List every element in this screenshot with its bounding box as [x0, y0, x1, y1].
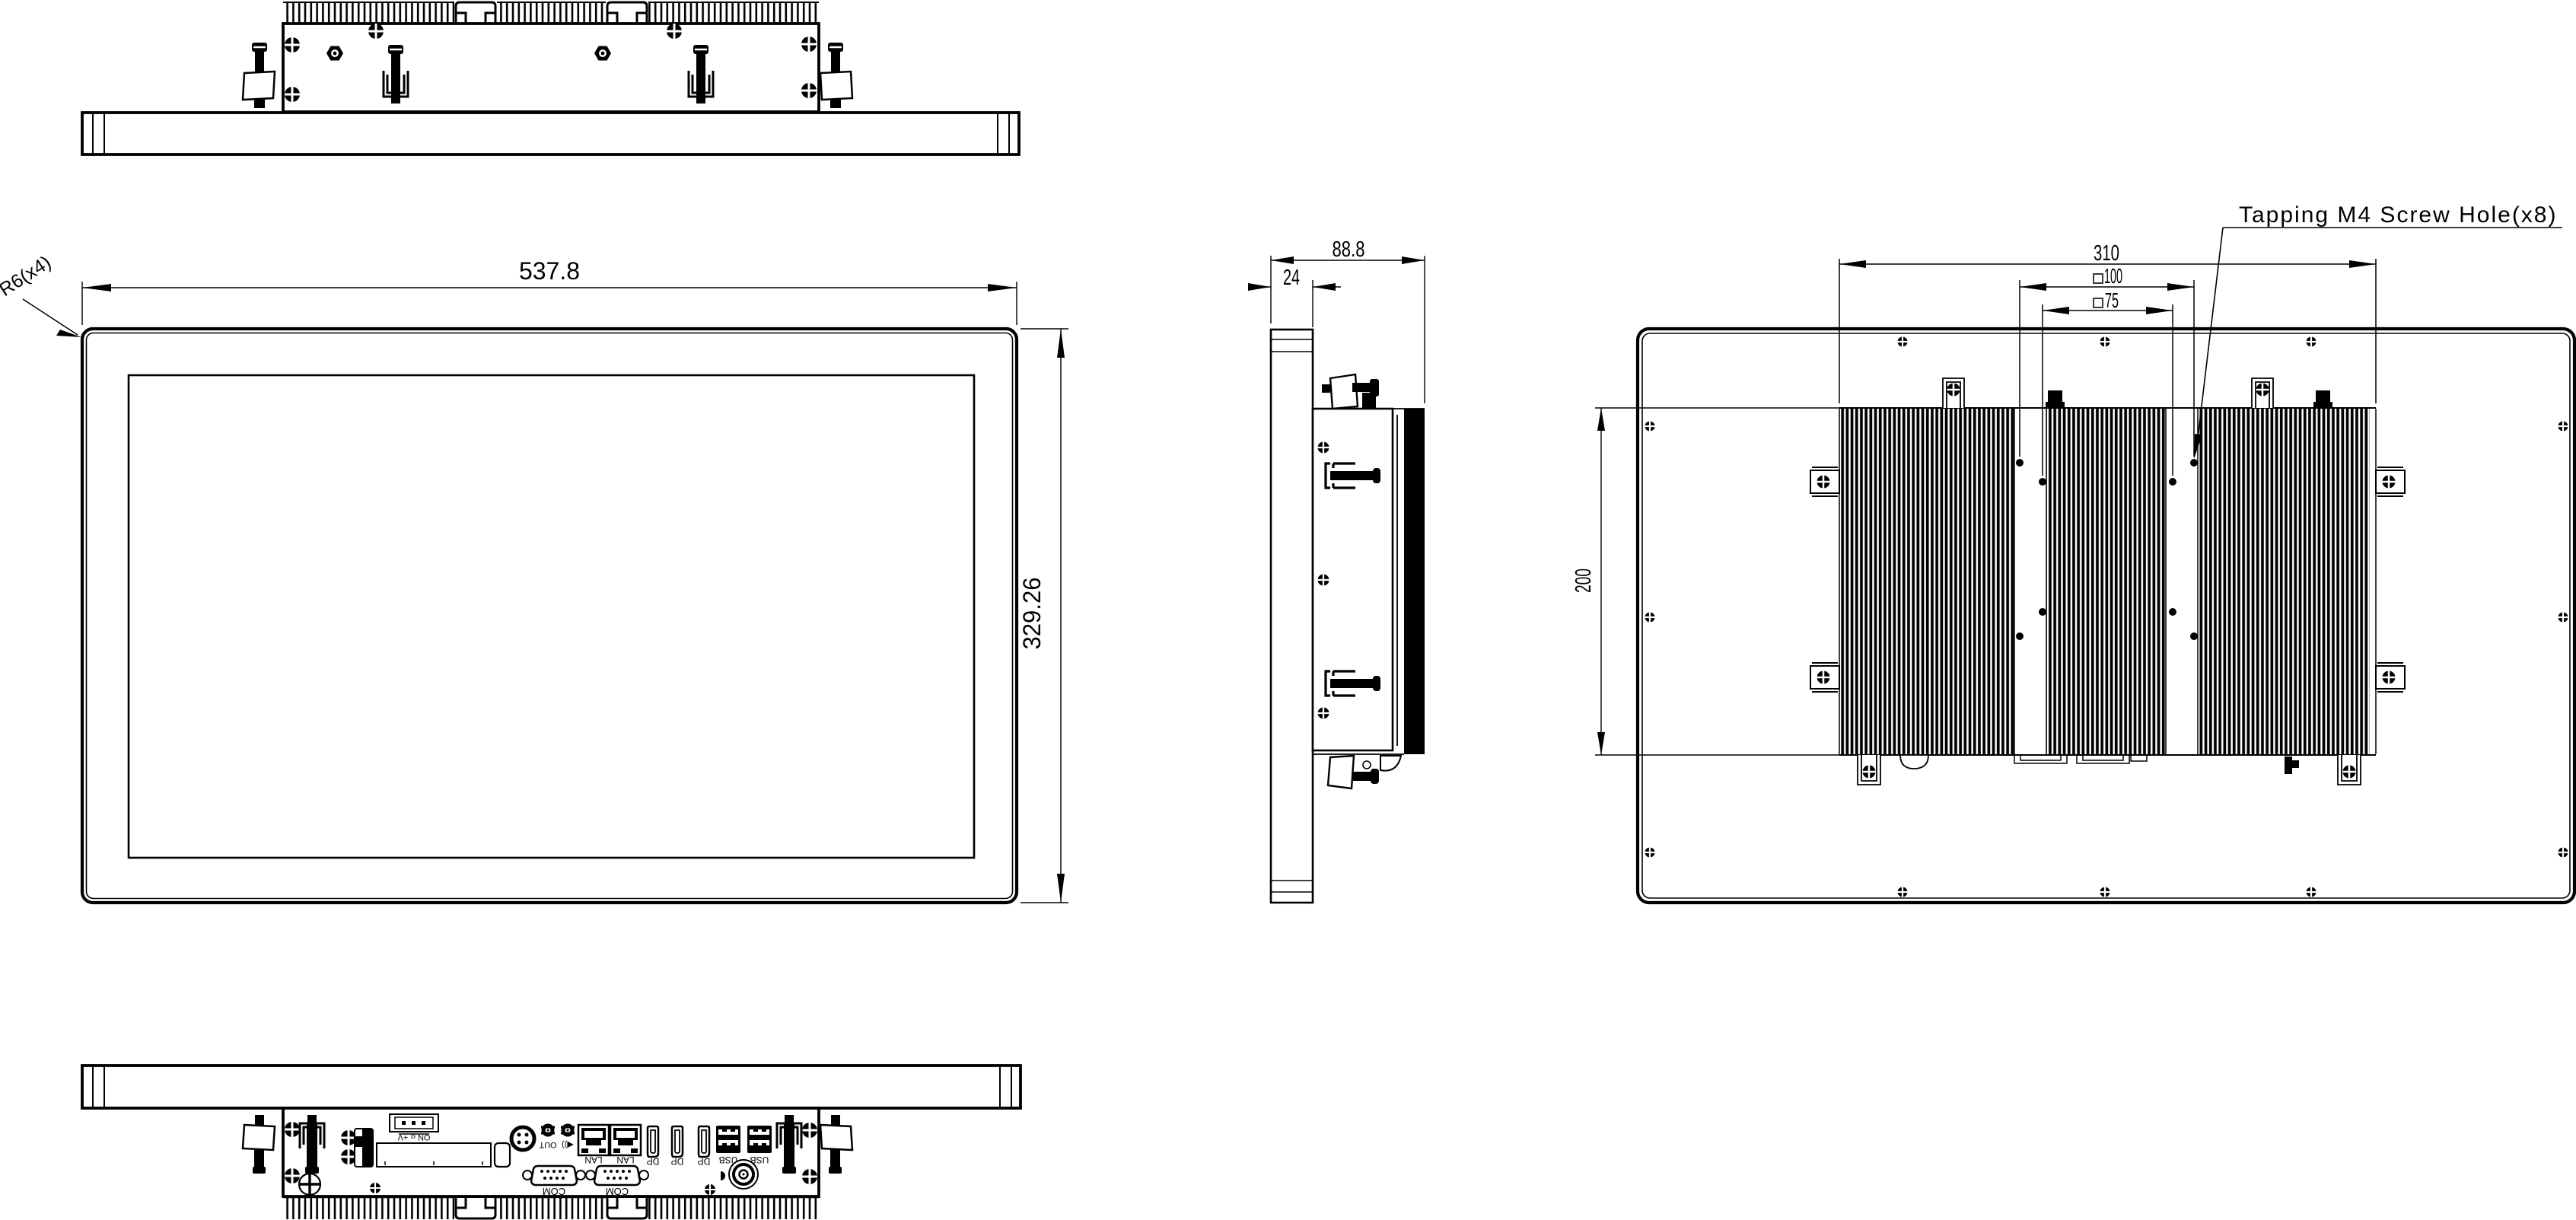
svg-text:COM: COM: [606, 1186, 629, 1197]
svg-text:OUT: OUT: [539, 1140, 557, 1149]
svg-text:ON ⍶ +V: ON ⍶ +V: [397, 1132, 431, 1142]
svg-text:DP: DP: [698, 1156, 711, 1167]
svg-text:329.26: 329.26: [1018, 578, 1046, 650]
svg-text:100: 100: [2104, 264, 2122, 288]
svg-text:537.8: 537.8: [519, 257, 580, 285]
svg-text:LAN: LAN: [584, 1155, 602, 1165]
svg-text:88.8: 88.8: [1333, 237, 1365, 262]
svg-text:LAN: LAN: [616, 1155, 634, 1165]
svg-text:24: 24: [1283, 266, 1300, 290]
svg-text:Tapping M4 Screw Hole(x8): Tapping M4 Screw Hole(x8): [2239, 202, 2557, 228]
svg-text:COM: COM: [543, 1186, 565, 1197]
svg-text:DP: DP: [647, 1156, 660, 1167]
svg-text:◀)): ◀)): [562, 1140, 574, 1149]
svg-text:DP: DP: [671, 1156, 684, 1167]
svg-text:75: 75: [2105, 288, 2119, 312]
svg-text:200: 200: [1571, 569, 1596, 593]
svg-text:310: 310: [2094, 241, 2119, 266]
